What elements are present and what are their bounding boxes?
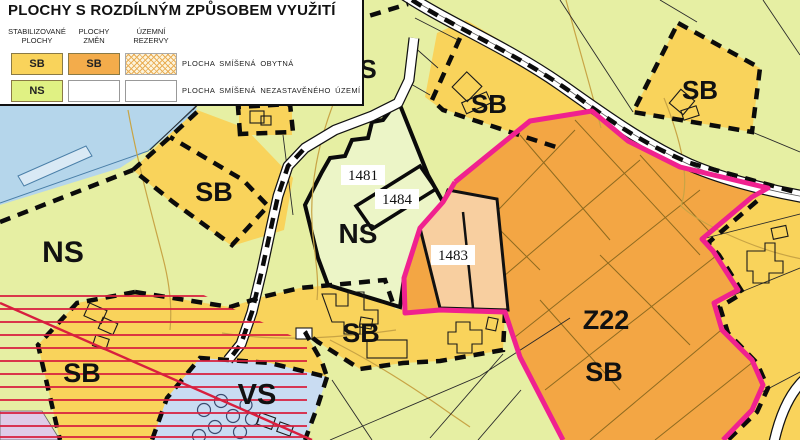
legend-swatch-sb-reserve (125, 53, 177, 75)
label-1484: 1484 (382, 192, 413, 208)
legend-title: PLOCHY S ROZDÍLNÝM ZPŮSOBEM VYUŽITÍ (8, 2, 336, 19)
label-sb-top-right: SB (682, 75, 718, 105)
legend-panel: PLOCHY S ROZDÍLNÝM ZPŮSOBEM VYUŽITÍ STAB… (0, 0, 364, 106)
legend-desc-nezastaveneho: PLOCHA SMÍŠENÁ NEZASTAVĚNÉHO ÚZEMÍ (182, 86, 361, 95)
label-vs: VS (238, 379, 277, 411)
label-ns-left: NS (42, 236, 84, 269)
zoning-map-screen: SB NS NS S SB SB SB SB SB VS Z22 1481 14… (0, 0, 800, 440)
legend-col-changes: PLOCHY ZMĚN (62, 27, 126, 45)
label-1481: 1481 (348, 168, 378, 184)
legend-swatch-ns-stab: NS (11, 80, 63, 102)
label-z22: Z22 (583, 305, 630, 335)
label-sb-right: SB (585, 357, 623, 387)
label-sb-left: SB (195, 177, 233, 207)
label-ns-center: NS (339, 218, 378, 249)
legend-col-reserves: ÚZEMNÍ REZERVY (119, 27, 183, 45)
legend-desc-obytna: PLOCHA SMÍŠENÁ OBYTNÁ (182, 59, 294, 68)
legend-swatch-sb-stab: SB (11, 53, 63, 75)
label-sb-bottom-left: SB (63, 358, 101, 388)
label-sb-bottom-mid: SB (342, 318, 380, 348)
label-1483: 1483 (438, 248, 468, 264)
legend-swatch-ns-change (68, 80, 120, 102)
label-sb-top-mid: SB (471, 89, 507, 119)
legend-swatch-sb-change: SB (68, 53, 120, 75)
legend-swatch-ns-reserve (125, 80, 177, 102)
